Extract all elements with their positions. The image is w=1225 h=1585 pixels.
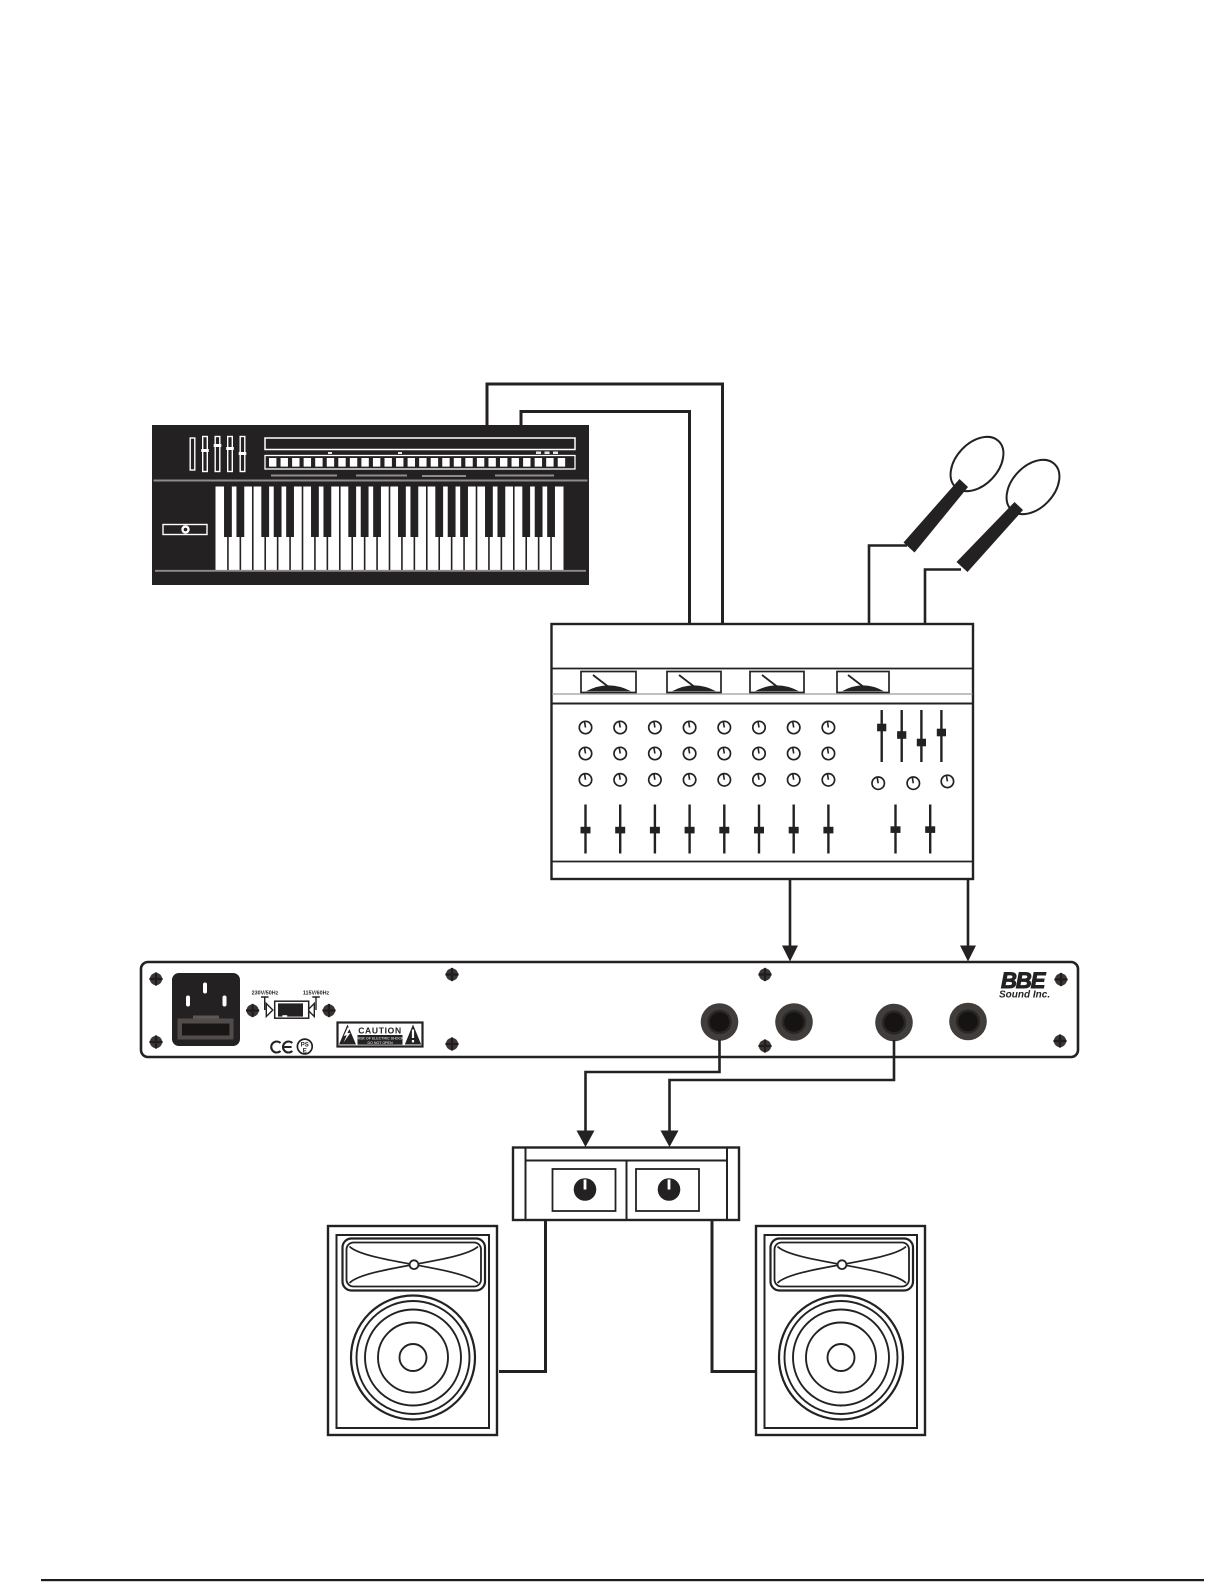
svg-text:DO NOT OPEN: DO NOT OPEN — [367, 1041, 392, 1045]
svg-text:230V/50Hz: 230V/50Hz — [252, 991, 279, 997]
svg-text:CAUTION: CAUTION — [358, 1026, 402, 1036]
svg-text:E: E — [303, 1048, 307, 1054]
svg-text:115V/60Hz: 115V/60Hz — [303, 991, 330, 997]
svg-text:Sound Inc.: Sound Inc. — [999, 990, 1050, 1001]
